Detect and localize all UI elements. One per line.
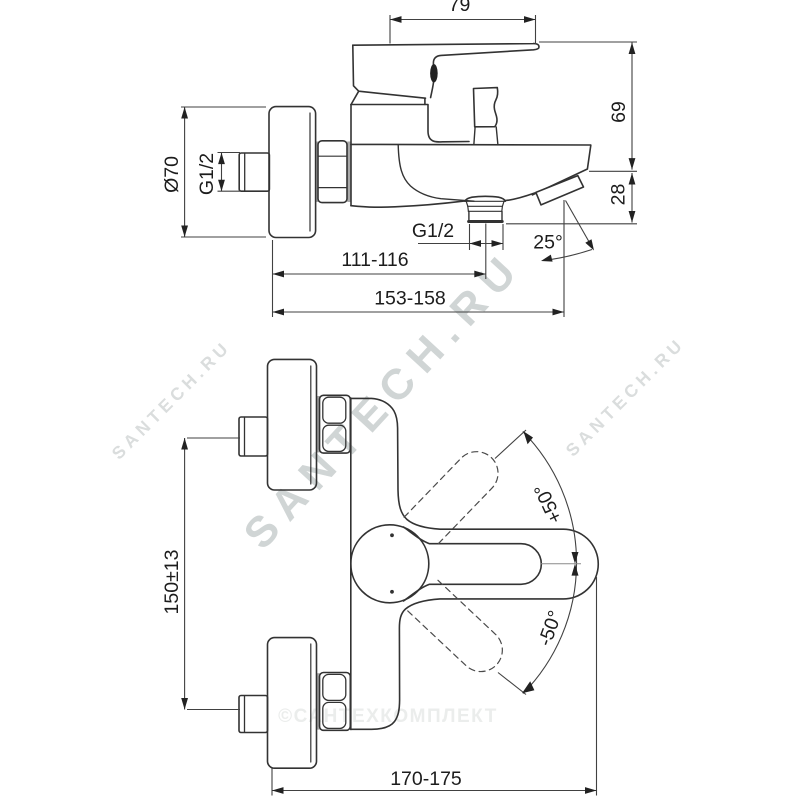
svg-text:G1/2: G1/2 bbox=[412, 220, 454, 242]
svg-text:69: 69 bbox=[608, 101, 630, 123]
svg-text:28: 28 bbox=[608, 184, 630, 206]
svg-text:25°: 25° bbox=[533, 232, 563, 254]
svg-text:111-116: 111-116 bbox=[341, 249, 408, 271]
svg-text:G1/2: G1/2 bbox=[196, 153, 218, 195]
svg-text:SANTECH.RU: SANTECH.RU bbox=[562, 333, 689, 460]
svg-text:153-158: 153-158 bbox=[374, 288, 446, 310]
svg-text:150±13: 150±13 bbox=[161, 550, 183, 615]
svg-text:Ø70: Ø70 bbox=[161, 156, 183, 193]
svg-text:79: 79 bbox=[449, 0, 471, 16]
svg-text:170-175: 170-175 bbox=[390, 768, 462, 790]
svg-text:-50°: -50° bbox=[534, 608, 567, 649]
svg-text:+50°: +50° bbox=[530, 480, 567, 526]
svg-text:SANTECH.RU: SANTECH.RU bbox=[108, 336, 235, 463]
